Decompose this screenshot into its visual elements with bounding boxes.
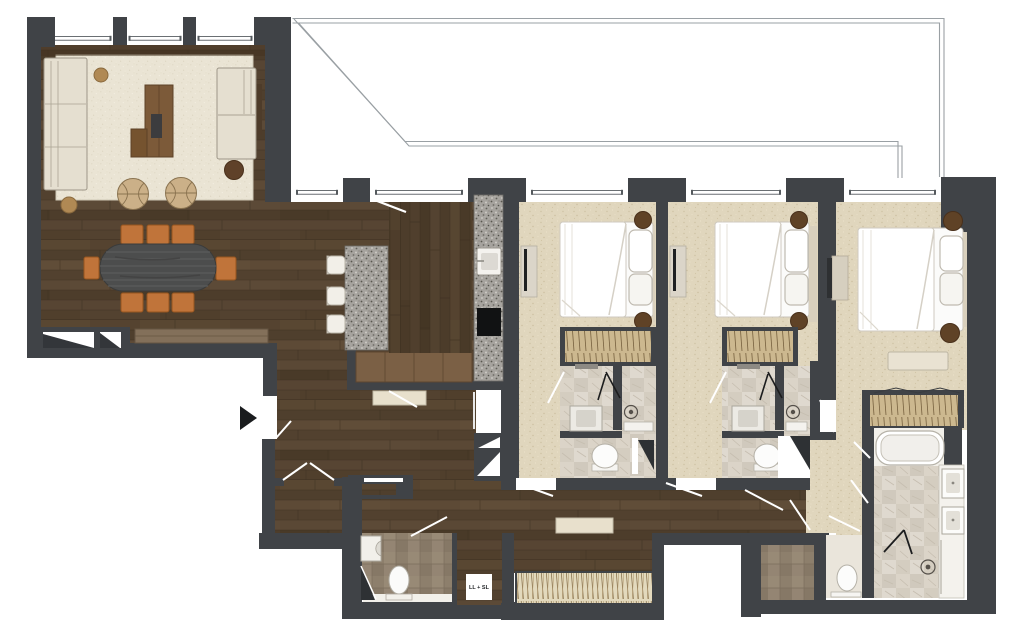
svg-text:LL + SL: LL + SL xyxy=(469,585,490,591)
